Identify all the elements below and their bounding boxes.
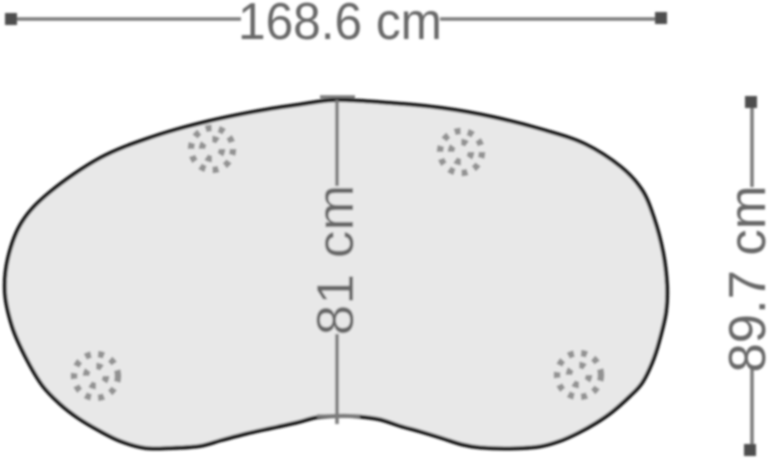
svg-text:89.7 cm: 89.7 cm <box>719 186 768 373</box>
svg-text:81 cm: 81 cm <box>307 185 365 336</box>
svg-text:168.6 cm: 168.6 cm <box>238 0 442 51</box>
